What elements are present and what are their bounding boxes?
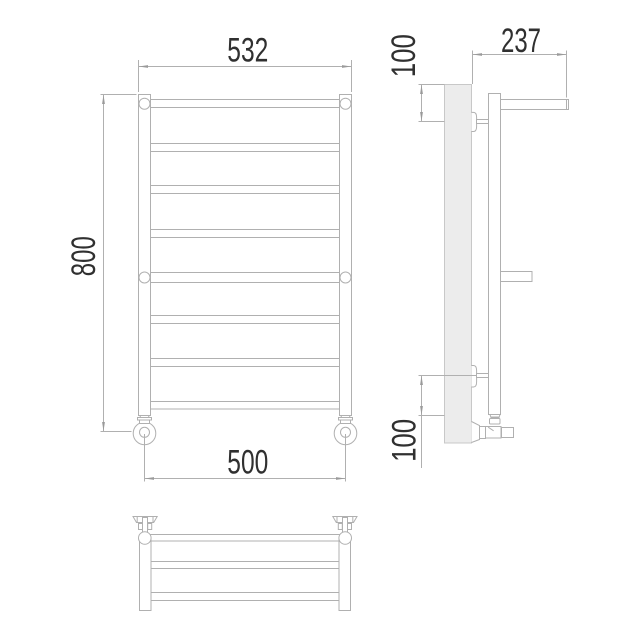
svg-text:500: 500: [227, 444, 268, 482]
svg-text:800: 800: [65, 236, 103, 276]
svg-text:100: 100: [385, 34, 423, 77]
svg-text:100: 100: [386, 419, 424, 462]
svg-text:532: 532: [227, 32, 268, 70]
svg-text:237: 237: [501, 22, 541, 60]
